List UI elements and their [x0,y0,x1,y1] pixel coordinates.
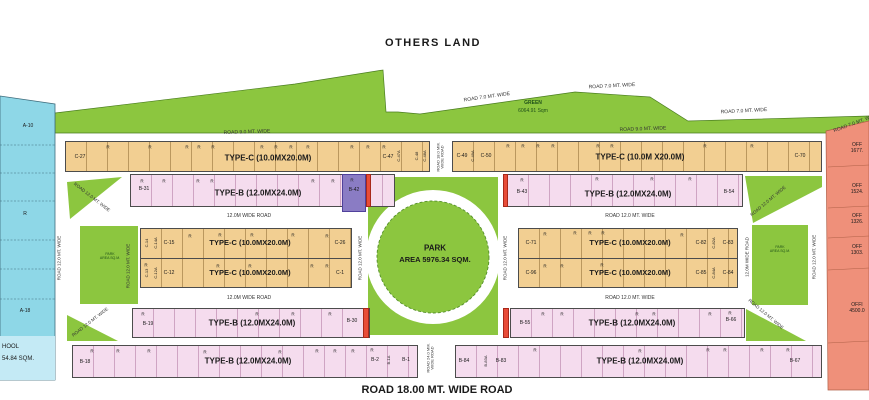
r-mark: R [218,232,221,237]
green-pocket-right-mid [752,225,808,305]
r-mark: R [760,347,763,352]
road-12m-label-upper-left: 12.0M WIDE ROAD [227,214,271,220]
r-mark: R [543,231,546,236]
mini-park-label-left: PARK AREA SQ.M. [100,253,120,261]
r-mark: R [196,178,199,183]
r-mark: R [325,233,328,238]
road-12-vert-far-left: ROAD 12.0 MT. WIDE [56,236,61,281]
office-2-line2: 1524. [834,190,869,196]
plot-label-c48: C-48 [415,152,419,161]
r-mark: R [306,144,309,149]
red-marker-4 [503,308,509,338]
office-label-2: OFF 1524. [834,184,869,195]
plot-label-b1a: B-1A [387,356,391,365]
office-label-5: OFFI 4500.0 [834,303,869,314]
r-mark: R [278,349,281,354]
r-mark: R [610,143,613,148]
r-mark: R [650,176,653,181]
site-plan: OTHERS LAND ROAD 18.00 MT. WIDE ROAD PAR… [0,0,869,400]
r-mark: R [723,347,726,352]
type-label-b-upper-right: TYPE-B (12.0MX24.0M) [585,191,672,200]
r-mark: R [652,311,655,316]
r-mark: R [521,143,524,148]
green-pocket-right-top [745,176,822,223]
r-mark: R [147,348,150,353]
road-24-vert-center-bottom: ROAD 24.0 MM. WIDE ROAD [427,343,436,372]
r-mark: R [728,310,731,315]
r-mark: R [600,262,603,267]
r-mark: R [185,144,188,149]
r-mark: R [541,311,544,316]
plot-label-c14a: C-14A [154,237,158,248]
r-mark: R [688,176,691,181]
r-mark: R [211,144,214,149]
plot-label-c12a: C-12A [154,267,158,278]
road-12-label-upper-right: ROAD 12.0 MT. WIDE [605,214,654,220]
plot-label-c96: C-96 [526,271,537,277]
plot-label-c82a: C-82A [712,237,716,248]
office-1-line2: 1677. [834,149,869,155]
plot-label-b19: B-19 [143,322,154,328]
plot-label-c71: C-71 [526,241,537,247]
road-12-label-lower-right: ROAD 12.0 MT. WIDE [605,296,654,302]
r-mark: R [350,177,353,182]
r-mark: R [536,143,539,148]
type-label-c-upper-left: TYPE-C (10.0MX20.0M) [225,155,312,164]
r-mark: R [333,348,336,353]
road-12m-label-lower-left: 12.0M WIDE ROAD [227,296,271,302]
road-12-vert-park-left: ROAD 12.0 MT. WIDE [357,236,362,281]
r-mark: R [533,347,536,352]
r-mark: R [162,178,165,183]
r-mark: R [289,144,292,149]
plot-label-c1: C-1 [336,271,344,277]
r-mark: R [188,233,191,238]
plot-label-c84a: C-84A [712,267,716,278]
r-mark: R [506,143,509,148]
plot-label-b67: B-67 [790,359,801,365]
r-mark: R [141,311,144,316]
road-18-line2: WIDE ROAD [441,142,445,171]
bottom-road-label: ROAD 18.00 MT. WIDE ROAD [362,384,513,396]
red-marker-3 [363,308,369,338]
r-mark: R [311,178,314,183]
r-mark: R [588,230,591,235]
r-mark: R [560,311,563,316]
r-mark: R [351,348,354,353]
office-4-line2: 1303. [834,251,869,257]
mini-park-left-line2: AREA SQ.M. [100,257,120,261]
type-label-c-upper-right: TYPE-C (10.0M X20.0M) [596,154,685,163]
plot-label-c26: C-26 [335,241,346,247]
r-mark: R [680,232,683,237]
r-mark: R [216,263,219,268]
plot-label-c47: C-47 [383,155,394,161]
park-title: PARK [424,245,446,254]
road-12-vert-park-right: ROAD 12.0 MT. WIDE [502,236,507,281]
r-mark: R [116,348,119,353]
plot-label-b2: B-2 [371,358,379,364]
plot-label-b18: B-18 [80,360,91,366]
r-mark: R [638,348,641,353]
plot-label-b84: B-84 [459,359,470,365]
r-mark: R [248,263,251,268]
r-mark: R [703,143,706,148]
plot-label-c85: C-85 [696,271,707,277]
road-12-vert-left: ROAD 12.0 MT. WIDE [125,244,130,289]
plot-label-c70: C-70 [795,154,806,160]
r-mark: R [90,348,93,353]
r-mark: R [260,144,263,149]
plot-label-a10: A-10 [23,124,34,130]
type-label-b-lower-right-2: TYPE-B (12.0MX24.0M) [597,358,684,367]
r-mark: R [144,262,147,267]
plot-label-b42: B-42 [349,188,360,194]
r-mark: R [210,178,213,183]
office-5-line2: 4500.0 [834,309,869,315]
type-label-b-lower-left-1: TYPE-B (12.0MX24.0M) [209,320,296,329]
r-mark: R [140,178,143,183]
plot-label-c82: C-82 [696,241,707,247]
r-mark: R [786,347,789,352]
road-24-line2: WIDE ROAD [431,343,435,372]
plot-label-c27: C-27 [75,155,86,161]
park-area-value: AREA 5976.34 SQM. [399,256,470,264]
r-mark: R [274,144,277,149]
plot-label-c84: C-84 [723,271,734,277]
green-title: GREEN [524,101,542,107]
r-mark: R [291,232,294,237]
red-marker-2 [503,174,508,207]
others-land-label: OTHERS LAND [385,37,481,49]
r-mark: R [520,177,523,182]
office-label-1: OFF 1677. [834,143,869,154]
r-mark: R [573,230,576,235]
r-mark: R [203,349,206,354]
type-label-b-lower-right-1: TYPE-B (12.0MX24.0M) [589,320,676,329]
type-label-c-mid-left-1: TYPE-C (10.0MX20.0M) [209,239,290,247]
plot-label-b66: B-66 [726,318,737,324]
r-mark: R [310,263,313,268]
plot-label-c49: C-49 [457,154,468,160]
plot-label-c12: C-12 [164,271,175,277]
road-12m-vert-right: 12.0M WIDE ROAD [744,237,749,277]
row-divider [141,258,351,259]
mini-park-right-line2: AREA SQ.M. [770,250,790,254]
r-mark: R [382,144,385,149]
plot-label-c15: C-15 [164,241,175,247]
r-mark: R [291,311,294,316]
r-mark: R [543,263,546,268]
red-marker-1 [366,174,371,207]
plot-label-a-r: R [23,212,27,218]
green-area-value: 6064.91 Sqm [518,109,548,115]
plot-label-b55: B-55 [520,321,531,327]
r-mark: R [197,144,200,149]
plot-label-c50: C-50 [481,154,492,160]
office-label-3: OFF 1326. [834,214,869,225]
type-label-b-lower-left-2: TYPE-B (12.0MX24.0M) [205,358,292,367]
r-mark: R [366,144,369,149]
plot-label-c48a: C-48A [423,150,427,161]
type-label-b-upper-left: TYPE-B (12.0MX24.0M) [215,190,302,199]
plot-label-c13: C-13 [145,269,149,278]
green-belt [55,70,869,133]
plot-label-b43: B-43 [517,190,528,196]
r-mark: R [325,263,328,268]
r-mark: R [596,143,599,148]
r-mark: R [255,311,258,316]
plot-label-c14: C-14 [145,239,149,248]
type-label-c-mid-right-1: TYPE-C (10.0MX20.0M) [589,239,670,247]
plot-label-c49a: C-49A [471,150,475,161]
plot-label-b31: B-31 [139,187,150,193]
r-mark: R [328,311,331,316]
r-mark: R [331,178,334,183]
plot-label-b83a: B-83A [484,355,488,366]
road-18-vert-center-top: ROAD 18.0 MM. WIDE ROAD [437,142,446,171]
school-label-line2: 54.84 SQM. [2,356,34,363]
row-divider [519,258,737,259]
school-label-line1: HOOL [2,344,19,351]
r-mark: R [601,230,604,235]
type-label-c-mid-left-2: TYPE-C (10.0MX20.0M) [209,269,290,277]
office-3-line2: 1326. [834,220,869,226]
r-mark: R [250,232,253,237]
r-mark: R [551,143,554,148]
r-mark: R [750,143,753,148]
r-mark: R [315,348,318,353]
plot-label-c83: C-83 [723,241,734,247]
plot-label-b83: B-83 [496,359,507,365]
r-mark: R [595,176,598,181]
plot-label-b54: B-54 [724,190,735,196]
r-mark: R [350,144,353,149]
office-label-4: OFF 1303. [834,245,869,256]
r-mark: R [708,311,711,316]
r-mark: R [106,144,109,149]
road-12-vert-far-right: ROAD 12.0 MT. WIDE [811,235,816,280]
plot-label-b1: B-1 [402,358,410,364]
r-mark: R [148,144,151,149]
mini-park-label-right: PARK AREA SQ.M. [770,246,790,254]
plot-label-b30: B-30 [347,319,358,325]
plot-label-a18: A-18 [20,309,31,315]
plot-label-c47a: C-47A [397,150,401,161]
r-mark: R [635,311,638,316]
r-mark: R [370,347,373,352]
r-mark: R [706,347,709,352]
type-label-c-mid-right-2: TYPE-C (10.0MX20.0M) [589,269,670,277]
r-mark: R [560,263,563,268]
